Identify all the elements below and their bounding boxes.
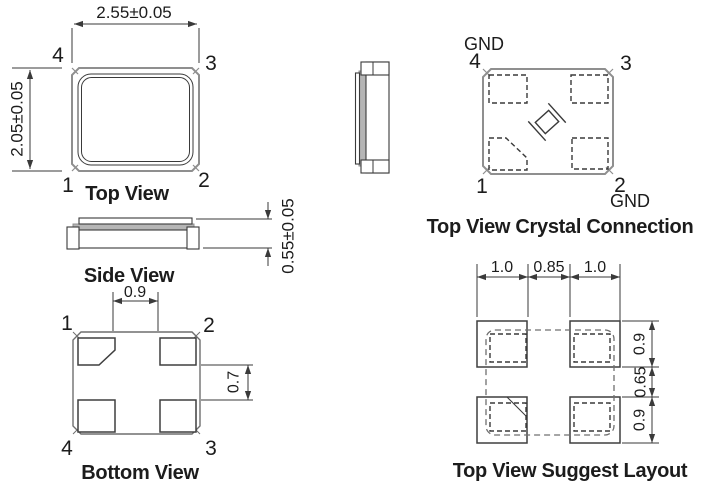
crystal-pin-3: 3 [620,52,632,75]
drawing-canvas: 2.55±0.05 2.05±0.05 4 3 1 2 Top View [0,0,719,494]
crystal-package-drawing: 2.55±0.05 2.05±0.05 4 3 1 2 Top View [0,0,719,494]
top-view-width-dim: 2.55±0.05 [96,3,172,22]
top-view-pin-3: 3 [205,52,217,75]
end-view-body [366,62,389,173]
bottom-view-dim-y: 0.7 [226,371,243,393]
bottom-view-caption: Bottom View [81,462,199,484]
side-view-body [68,230,198,248]
top-view-pin-1: 1 [62,174,74,197]
crystal-pin-4: 4 [469,50,481,73]
crystal-connection-caption: Top View Crystal Connection [427,216,694,238]
bottom-view-pad-3 [160,400,196,432]
side-view-thickness-dim: 0.55±0.05 [279,198,298,274]
suggest-layout-caption: Top View Suggest Layout [453,460,688,482]
end-view-bottom-pad [361,160,389,173]
end-view [356,62,390,173]
layout-land-pad-tl [477,321,527,367]
end-view-lid-edge [356,73,360,164]
layout-dim-gap-v: 0.65 [633,366,650,397]
side-view: 0.55±0.05 Side View [67,198,298,287]
side-view-lid [79,218,192,224]
bottom-view: 0.9 0.7 1 2 4 3 Bottom View [61,284,253,484]
layout-land-pad-bl [477,397,527,443]
layout-land-pad-br [570,397,620,443]
top-view-pin-4: 4 [52,44,64,67]
layout-dim-pad-height-top: 0.9 [632,333,649,355]
bottom-view-pin-3: 3 [205,437,217,460]
top-view: 2.55±0.05 2.05±0.05 4 3 1 2 Top View [8,3,217,205]
layout-dim-left-pad: 1.0 [491,259,513,276]
crystal-pin-1: 1 [476,175,488,198]
side-view-right-pad [187,227,199,249]
top-view-height-dim: 2.05±0.05 [8,81,27,157]
crystal-gnd-bottom-label: GND [610,191,650,211]
layout-dim-pad-height-bottom: 0.9 [632,409,649,431]
layout-land-pad-tr [570,321,620,367]
top-view-pin-2: 2 [198,169,210,192]
top-view-caption: Top View [85,183,169,205]
suggest-layout-view: 1.0 0.85 1.0 0.9 0.65 0.9 Top View Sugge… [453,259,688,482]
bottom-view-dim-x: 0.9 [124,284,146,301]
layout-dim-right-pad: 1.0 [584,259,606,276]
side-view-lid-layer [73,224,194,230]
layout-dim-gap: 0.85 [533,259,564,276]
side-view-left-pad [67,227,79,249]
bottom-view-pin-4: 4 [61,437,73,460]
end-view-top-pad [361,62,389,75]
bottom-view-pin-1: 1 [61,312,73,335]
bottom-view-pad-2 [160,338,196,365]
bottom-view-pad-4 [78,400,115,432]
top-view-package-outline [72,68,199,171]
bottom-view-pin-2: 2 [203,314,215,337]
crystal-connection-view: GND 4 3 1 2 GND Top View Crystal Connect… [427,34,694,238]
